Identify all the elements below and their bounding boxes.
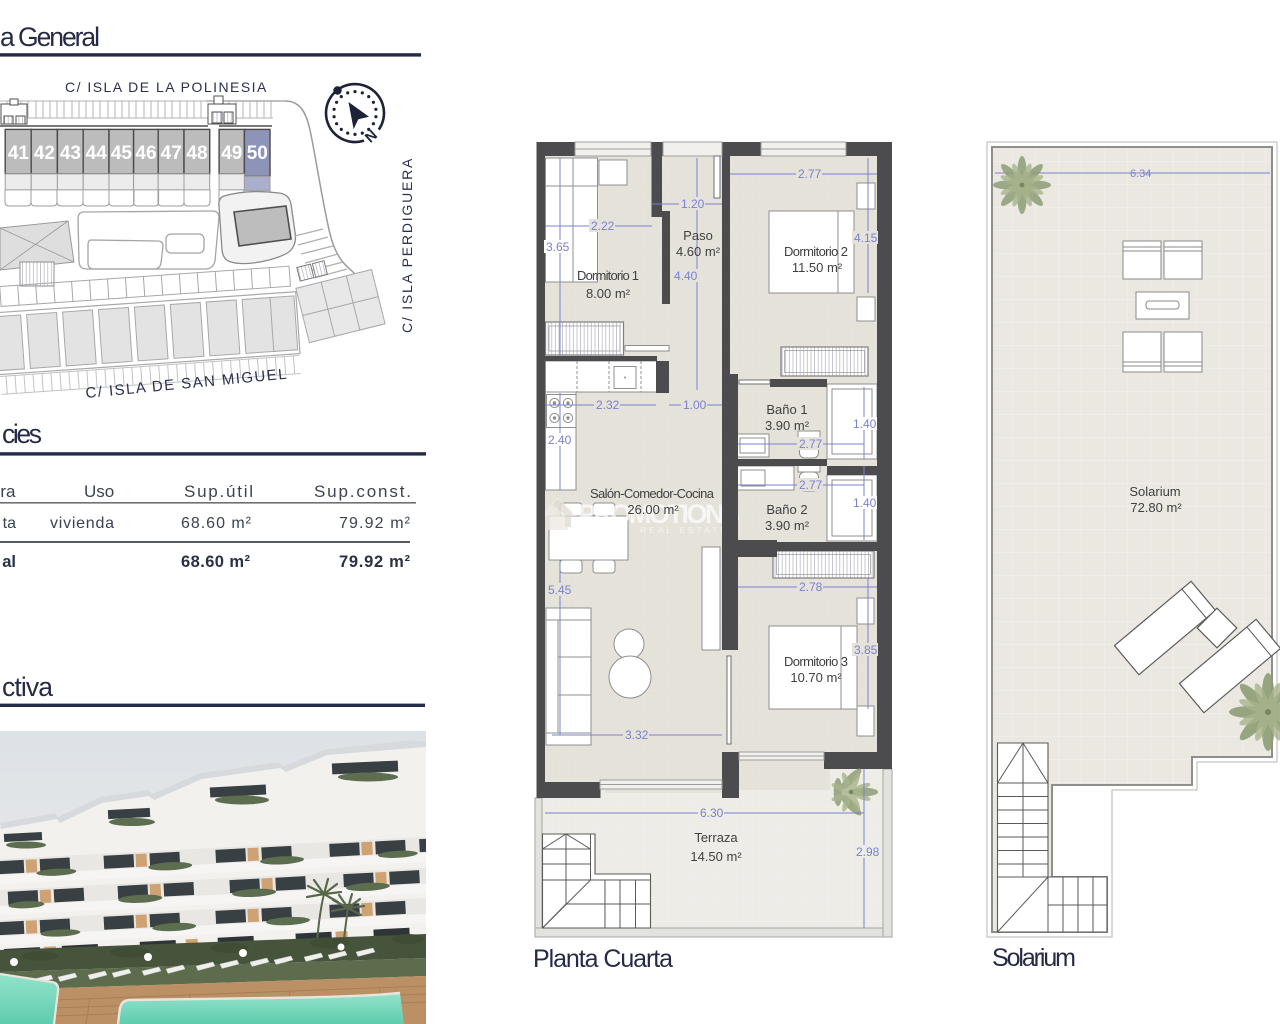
svg-text:ta: ta (3, 515, 16, 532)
svg-text:Terraza: Terraza (694, 830, 738, 845)
svg-text:Solarium: Solarium (1129, 484, 1180, 499)
svg-text:68.60 m²: 68.60 m² (181, 553, 251, 571)
svg-text:2.32: 2.32 (596, 398, 620, 412)
svg-text:3.85: 3.85 (854, 643, 878, 657)
svg-text:Dormitorio 3: Dormitorio 3 (784, 654, 848, 669)
svg-text:26.00 m²: 26.00 m² (627, 502, 679, 517)
svg-text:vivienda: vivienda (50, 515, 114, 532)
svg-text:6.30: 6.30 (700, 806, 724, 820)
svg-text:Baño 1: Baño 1 (766, 402, 807, 417)
svg-text:N: N (362, 127, 380, 146)
svg-text:1.20: 1.20 (681, 197, 705, 211)
svg-text:Sup.útil: Sup.útil (184, 482, 253, 501)
svg-text:2.77: 2.77 (798, 167, 822, 181)
svg-text:3.32: 3.32 (625, 728, 649, 742)
svg-text:10.70 m²: 10.70 m² (790, 670, 842, 685)
svg-text:2.77: 2.77 (799, 437, 823, 451)
svg-text:Planta Cuarta: Planta Cuarta (533, 945, 673, 973)
svg-text:11.50 m²: 11.50 m² (792, 260, 843, 275)
svg-text:5.45: 5.45 (548, 583, 572, 597)
svg-text:42: 42 (34, 143, 55, 164)
svg-text:2.40: 2.40 (548, 433, 572, 447)
svg-text:14.50 m²: 14.50 m² (690, 849, 742, 864)
svg-text:C/ ISLA PERDIGUERA: C/ ISLA PERDIGUERA (399, 157, 415, 333)
svg-text:48: 48 (186, 143, 207, 164)
svg-text:3.90 m²: 3.90 m² (765, 518, 810, 533)
svg-text:68.60 m²: 68.60 m² (181, 515, 252, 532)
svg-text:8.00 m²: 8.00 m² (586, 286, 631, 301)
svg-text:45: 45 (111, 143, 133, 164)
svg-text:1.40: 1.40 (853, 496, 877, 510)
svg-text:43: 43 (60, 143, 81, 164)
svg-text:a General: a General (0, 22, 100, 52)
svg-text:4.60 m²: 4.60 m² (676, 244, 721, 259)
svg-text:4.40: 4.40 (674, 269, 698, 283)
svg-text:49: 49 (221, 143, 242, 164)
svg-text:Dormitorio 1: Dormitorio 1 (577, 268, 639, 283)
svg-text:2.22: 2.22 (591, 219, 615, 233)
svg-text:4.15: 4.15 (854, 231, 878, 245)
svg-text:3.90 m²: 3.90 m² (765, 418, 810, 433)
svg-text:Dormitorio 2: Dormitorio 2 (784, 244, 848, 259)
svg-text:72.80 m²: 72.80 m² (1130, 500, 1182, 515)
svg-text:Solarium: Solarium (992, 944, 1076, 972)
svg-text:1.00: 1.00 (683, 398, 707, 412)
svg-text:Sup.const.: Sup.const. (314, 482, 411, 501)
svg-text:C/ ISLA DE LA POLINESIA: C/ ISLA DE LA POLINESIA (65, 79, 268, 95)
svg-text:Salón-Comedor-Cocina: Salón-Comedor-Cocina (590, 486, 715, 501)
svg-text:Baño 2: Baño 2 (766, 502, 807, 517)
svg-text:Uso: Uso (84, 482, 114, 501)
svg-text:44: 44 (86, 143, 108, 164)
svg-text:2.77: 2.77 (799, 478, 823, 492)
svg-text:REAL ESTATE: REAL ESTATE (640, 525, 729, 535)
svg-text:ctiva: ctiva (2, 672, 53, 702)
svg-text:cies: cies (2, 419, 42, 449)
svg-text:79.92 m²: 79.92 m² (339, 515, 411, 532)
svg-text:1.40: 1.40 (853, 417, 877, 431)
svg-text:79.92 m²: 79.92 m² (339, 553, 411, 571)
svg-text:2.98: 2.98 (856, 845, 880, 859)
svg-text:2.78: 2.78 (799, 580, 823, 594)
svg-text:al: al (2, 553, 16, 571)
svg-text:Paso: Paso (683, 228, 713, 243)
svg-text:47: 47 (161, 143, 182, 164)
svg-text:ra: ra (0, 482, 16, 501)
svg-text:6.34: 6.34 (1130, 168, 1151, 180)
svg-text:3.65: 3.65 (546, 240, 570, 254)
svg-text:41: 41 (8, 143, 30, 164)
svg-text:46: 46 (135, 143, 156, 164)
svg-text:50: 50 (247, 143, 268, 164)
